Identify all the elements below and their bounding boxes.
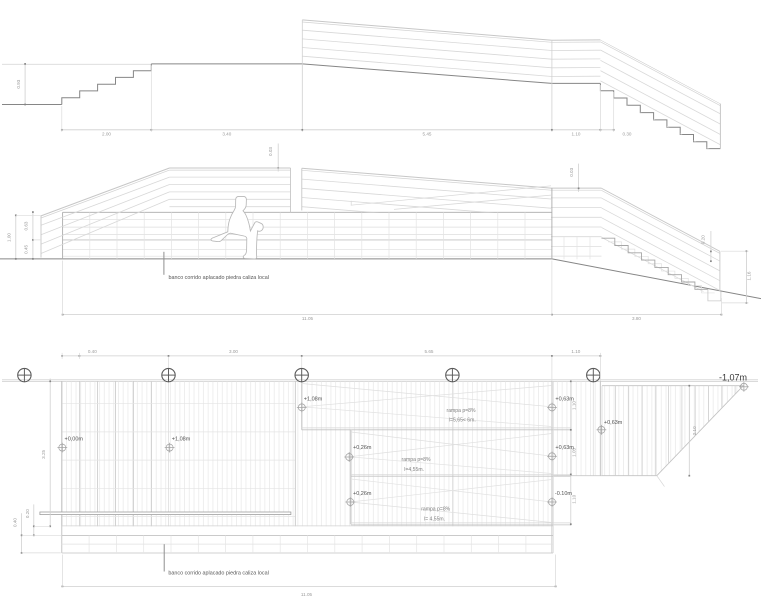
svg-text:l= 4,55m.: l= 4,55m. [424,516,445,522]
svg-text:-1,07m: -1,07m [719,372,747,382]
svg-text:5.45: 5.45 [423,131,432,136]
svg-text:0.20: 0.20 [701,235,706,244]
svg-text:3.40: 3.40 [222,131,231,136]
svg-text:0.40: 0.40 [88,349,97,354]
svg-text:rampa p=8%: rampa p=8% [402,457,431,463]
svg-text:l=4,55m.: l=4,55m. [404,467,424,473]
svg-text:0.03: 0.03 [268,147,273,156]
svg-text:0.45: 0.45 [23,244,28,253]
svg-text:1.00: 1.00 [6,233,11,242]
svg-text:0.03: 0.03 [569,167,574,176]
svg-text:rampa p=8%: rampa p=8% [447,408,476,414]
svg-text:0.63: 0.63 [23,221,28,230]
svg-text:+0,63m: +0,63m [555,396,574,402]
svg-text:banco corrido aplacado piedra: banco corrido aplacado piedra caliza loc… [169,275,269,281]
svg-text:1.10: 1.10 [572,131,581,136]
svg-text:0.30: 0.30 [623,131,632,136]
svg-text:11.05: 11.05 [301,592,313,597]
svg-text:2.10: 2.10 [692,426,697,435]
svg-text:1.16: 1.16 [747,271,752,280]
svg-text:11.05: 11.05 [302,316,314,321]
svg-text:1.10: 1.10 [572,494,577,503]
svg-text:1.10: 1.10 [571,349,580,354]
svg-text:3.00: 3.00 [229,349,238,354]
svg-text:3.25: 3.25 [41,449,46,458]
svg-text:banco corrido aplacado piedra: banco corrido aplacado piedra caliza loc… [168,571,268,577]
svg-text:-0.10m: -0.10m [555,491,573,497]
svg-text:+0,26m: +0,26m [353,445,372,451]
svg-text:+0,63m: +0,63m [555,445,574,451]
svg-text:2.00: 2.00 [102,131,111,136]
svg-text:rampa p=8%: rampa p=8% [421,506,450,512]
svg-text:3.80: 3.80 [632,316,641,321]
svg-text:+1,08m: +1,08m [304,396,323,402]
svg-text:+0,63m: +0,63m [604,420,623,426]
svg-text:+1,08m: +1,08m [172,437,191,443]
svg-text:0.93: 0.93 [16,79,21,88]
svg-text:+0,26m: +0,26m [353,491,372,497]
svg-text:l=5,65< 6m.: l=5,65< 6m. [449,418,476,424]
svg-text:0.20: 0.20 [25,509,30,518]
svg-text:0.40: 0.40 [13,518,18,527]
svg-text:+0,00m: +0,00m [65,437,84,443]
svg-text:5.65: 5.65 [425,349,434,354]
